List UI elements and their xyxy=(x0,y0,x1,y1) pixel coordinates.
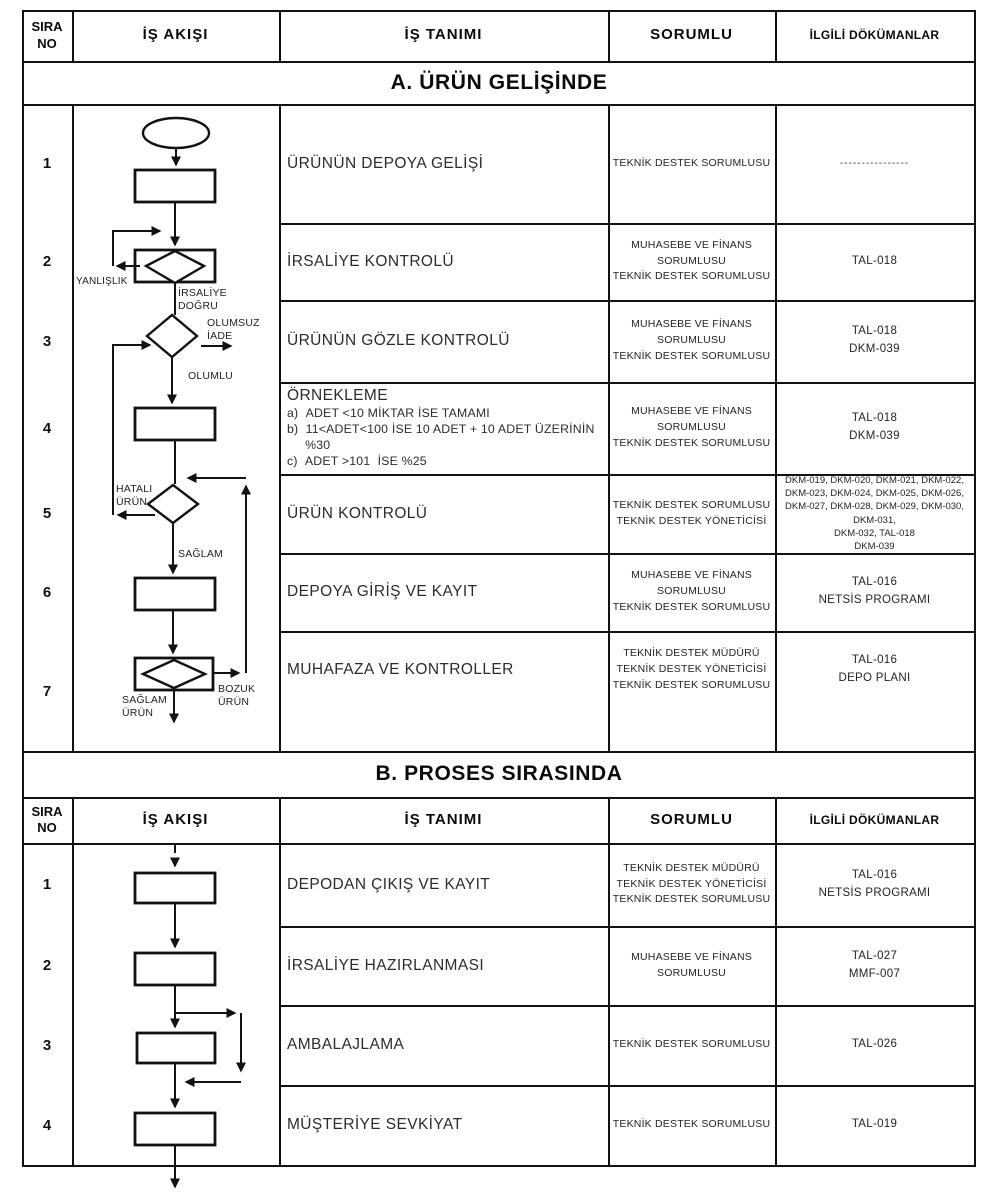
row-number: 3 xyxy=(22,1005,72,1085)
table-row: 1 DEPODAN ÇIKIŞ VE KAYIT TEKNİK DESTEK M… xyxy=(22,843,974,926)
is-tanimi-cell: MUHAFAZA VE KONTROLLER xyxy=(279,631,608,751)
sorumlu-cell: MUHASEBE VE FİNANS SORUMLUSU TEKNİK DEST… xyxy=(608,300,775,382)
is-tanimi-cell: İRSALİYE KONTROLÜ xyxy=(279,223,608,300)
is-tanimi-cell: ÜRÜNÜN DEPOYA GELİŞİ xyxy=(279,104,608,223)
row-number: 4 xyxy=(22,1085,72,1165)
is-tanimi-text: AMBALAJLAMA xyxy=(287,1036,404,1054)
table-row: 7 MUHAFAZA VE KONTROLLER TEKNİK DESTEK M… xyxy=(22,631,974,751)
table-row: 6 DEPOYA GİRİŞ VE KAYIT MUHASEBE VE FİNA… xyxy=(22,553,974,631)
is-tanimi-text: İRSALİYE HAZIRLANMASI xyxy=(287,957,484,975)
header-cell-sira-no: SIRA NO xyxy=(22,10,72,61)
sorumlu-cell: TEKNİK DESTEK SORUMLUSU TEKNİK DESTEK YÖ… xyxy=(608,474,775,553)
is-tanimi-cell: AMBALAJLAMA xyxy=(279,1005,608,1085)
section-a-title: A. ÜRÜN GELİŞİNDE xyxy=(22,61,976,104)
row-number: 3 xyxy=(22,300,72,382)
flow-label-irsaliye-dogru: İRSALİYE DOĞRU xyxy=(178,287,227,312)
row-number: 2 xyxy=(22,926,72,1005)
table-row: 3 ÜRÜNÜN GÖZLE KONTROLÜ MUHASEBE VE FİNA… xyxy=(22,300,974,382)
dokuman-cell: DKM-019, DKM-020, DKM-021, DKM-022, DKM-… xyxy=(775,474,974,553)
is-tanimi-text: İRSALİYE KONTROLÜ xyxy=(287,253,454,271)
dokuman-cell: TAL-027 MMF-007 xyxy=(775,926,974,1005)
is-tanimi-cell: DEPODAN ÇIKIŞ VE KAYIT xyxy=(279,843,608,926)
is-tanimi-cell: İRSALİYE HAZIRLANMASI xyxy=(279,926,608,1005)
table-row: 5 ÜRÜN KONTROLÜ TEKNİK DESTEK SORUMLUSU … xyxy=(22,474,974,553)
sorumlu-cell: MUHASEBE VE FİNANS SORUMLUSU xyxy=(608,926,775,1005)
flow-label-saglam: SAĞLAM xyxy=(178,548,223,561)
header-cell-sira-no: SIRA NO xyxy=(22,797,72,843)
is-tanimi-text: MÜŞTERİYE SEVKİYAT xyxy=(287,1116,462,1134)
sorumlu-cell: MUHASEBE VE FİNANS SORUMLUSU TEKNİK DEST… xyxy=(608,553,775,631)
table-row: 4 MÜŞTERİYE SEVKİYAT TEKNİK DESTEK SORUM… xyxy=(22,1085,974,1165)
is-tanimi-text: DEPOYA GİRİŞ VE KAYIT xyxy=(287,583,477,601)
row-number: 7 xyxy=(22,631,72,751)
dokuman-cell: TAL-018 DKM-039 xyxy=(775,382,974,474)
dokuman-cell: TAL-018 xyxy=(775,223,974,300)
header-cell-ilgili-dokumanlar: İLGİLİ DÖKÜMANLAR xyxy=(775,797,974,843)
is-tanimi-text: ÜRÜNÜN GÖZLE KONTROLÜ xyxy=(287,332,510,350)
is-tanimi-cell: ÜRÜN KONTROLÜ xyxy=(279,474,608,553)
is-tanimi-cell: ÜRÜNÜN GÖZLE KONTROLÜ xyxy=(279,300,608,382)
row-number: 1 xyxy=(22,843,72,926)
dokuman-cell: TAL-019 xyxy=(775,1085,974,1165)
row-number: 2 xyxy=(22,223,72,300)
is-tanimi-detail: a) ADET <10 MİKTAR İSE TAMAMI b) 11<ADET… xyxy=(287,405,595,470)
table-row: 3 AMBALAJLAMA TEKNİK DESTEK SORUMLUSU TA… xyxy=(22,1005,974,1085)
row-number: 1 xyxy=(22,104,72,223)
sorumlu-cell: TEKNİK DESTEK MÜDÜRÜ TEKNİK DESTEK YÖNET… xyxy=(608,843,775,926)
sorumlu-cell: MUHASEBE VE FİNANS SORUMLUSU TEKNİK DEST… xyxy=(608,223,775,300)
flow-label-olumsuz-iade: OLUMSUZ İADE xyxy=(207,317,260,342)
dokuman-cell: TAL-016 NETSİS PROGRAMI xyxy=(775,553,974,631)
flow-label-yanlislik: YANLIŞLIK xyxy=(76,276,128,289)
is-tanimi-text: DEPODAN ÇIKIŞ VE KAYIT xyxy=(287,876,490,894)
flow-label-bozuk-urun: BOZUK ÜRÜN xyxy=(218,683,255,708)
table-row: 2 İRSALİYE KONTROLÜ MUHASEBE VE FİNANS S… xyxy=(22,223,974,300)
header-cell-is-tanimi: İŞ TANIMI xyxy=(279,797,608,843)
table-row: 4 ÖRNEKLEME a) ADET <10 MİKTAR İSE TAMAM… xyxy=(22,382,974,474)
flow-label-olumlu: OLUMLU xyxy=(188,370,233,383)
header-cell-sorumlu: SORUMLU xyxy=(608,10,775,61)
flow-label-hatali-urun: HATALI ÜRÜN xyxy=(116,483,152,508)
is-tanimi-text: ÜRÜNÜN DEPOYA GELİŞİ xyxy=(287,155,483,173)
process-flow-document: SIRA NO İŞ AKIŞI İŞ TANIMI SORUMLU İLGİL… xyxy=(0,0,999,1200)
dokuman-cell: ---------------- xyxy=(775,104,974,223)
sorumlu-cell: TEKNİK DESTEK SORUMLUSU xyxy=(608,104,775,223)
dokuman-cell: TAL-016 NETSİS PROGRAMI xyxy=(775,843,974,926)
row-number: 6 xyxy=(22,553,72,631)
header-cell-ilgili-dokumanlar: İLGİLİ DÖKÜMANLAR xyxy=(775,10,974,61)
header-cell-is-akisi: İŞ AKIŞI xyxy=(72,10,279,61)
row-number: 5 xyxy=(22,474,72,553)
dokuman-cell: TAL-026 xyxy=(775,1005,974,1085)
sorumlu-cell: TEKNİK DESTEK MÜDÜRÜ TEKNİK DESTEK YÖNET… xyxy=(608,631,775,751)
is-tanimi-text: MUHAFAZA VE KONTROLLER xyxy=(287,661,514,679)
is-tanimi-cell: MÜŞTERİYE SEVKİYAT xyxy=(279,1085,608,1165)
section-b-title: B. PROSES SIRASINDA xyxy=(22,751,976,797)
dokuman-cell: TAL-016 DEPO PLANI xyxy=(775,631,974,751)
row-number: 4 xyxy=(22,382,72,474)
sorumlu-cell: TEKNİK DESTEK SORUMLUSU xyxy=(608,1085,775,1165)
header-cell-sorumlu: SORUMLU xyxy=(608,797,775,843)
flow-label-saglam-urun: SAĞLAM ÜRÜN xyxy=(122,694,167,719)
dokuman-cell: TAL-018 DKM-039 xyxy=(775,300,974,382)
is-tanimi-text: ÜRÜN KONTROLÜ xyxy=(287,505,427,523)
header-cell-is-tanimi: İŞ TANIMI xyxy=(279,10,608,61)
is-tanimi-cell: DEPOYA GİRİŞ VE KAYIT xyxy=(279,553,608,631)
is-tanimi-text: ÖRNEKLEME xyxy=(287,387,388,405)
sorumlu-cell: MUHASEBE VE FİNANS SORUMLUSU TEKNİK DEST… xyxy=(608,382,775,474)
is-tanimi-cell: ÖRNEKLEME a) ADET <10 MİKTAR İSE TAMAMI … xyxy=(279,382,608,474)
header-cell-is-akisi: İŞ AKIŞI xyxy=(72,797,279,843)
table-row: 1 ÜRÜNÜN DEPOYA GELİŞİ TEKNİK DESTEK SOR… xyxy=(22,104,974,223)
table-row: 2 İRSALİYE HAZIRLANMASI MUHASEBE VE FİNA… xyxy=(22,926,974,1005)
sorumlu-cell: TEKNİK DESTEK SORUMLUSU xyxy=(608,1005,775,1085)
